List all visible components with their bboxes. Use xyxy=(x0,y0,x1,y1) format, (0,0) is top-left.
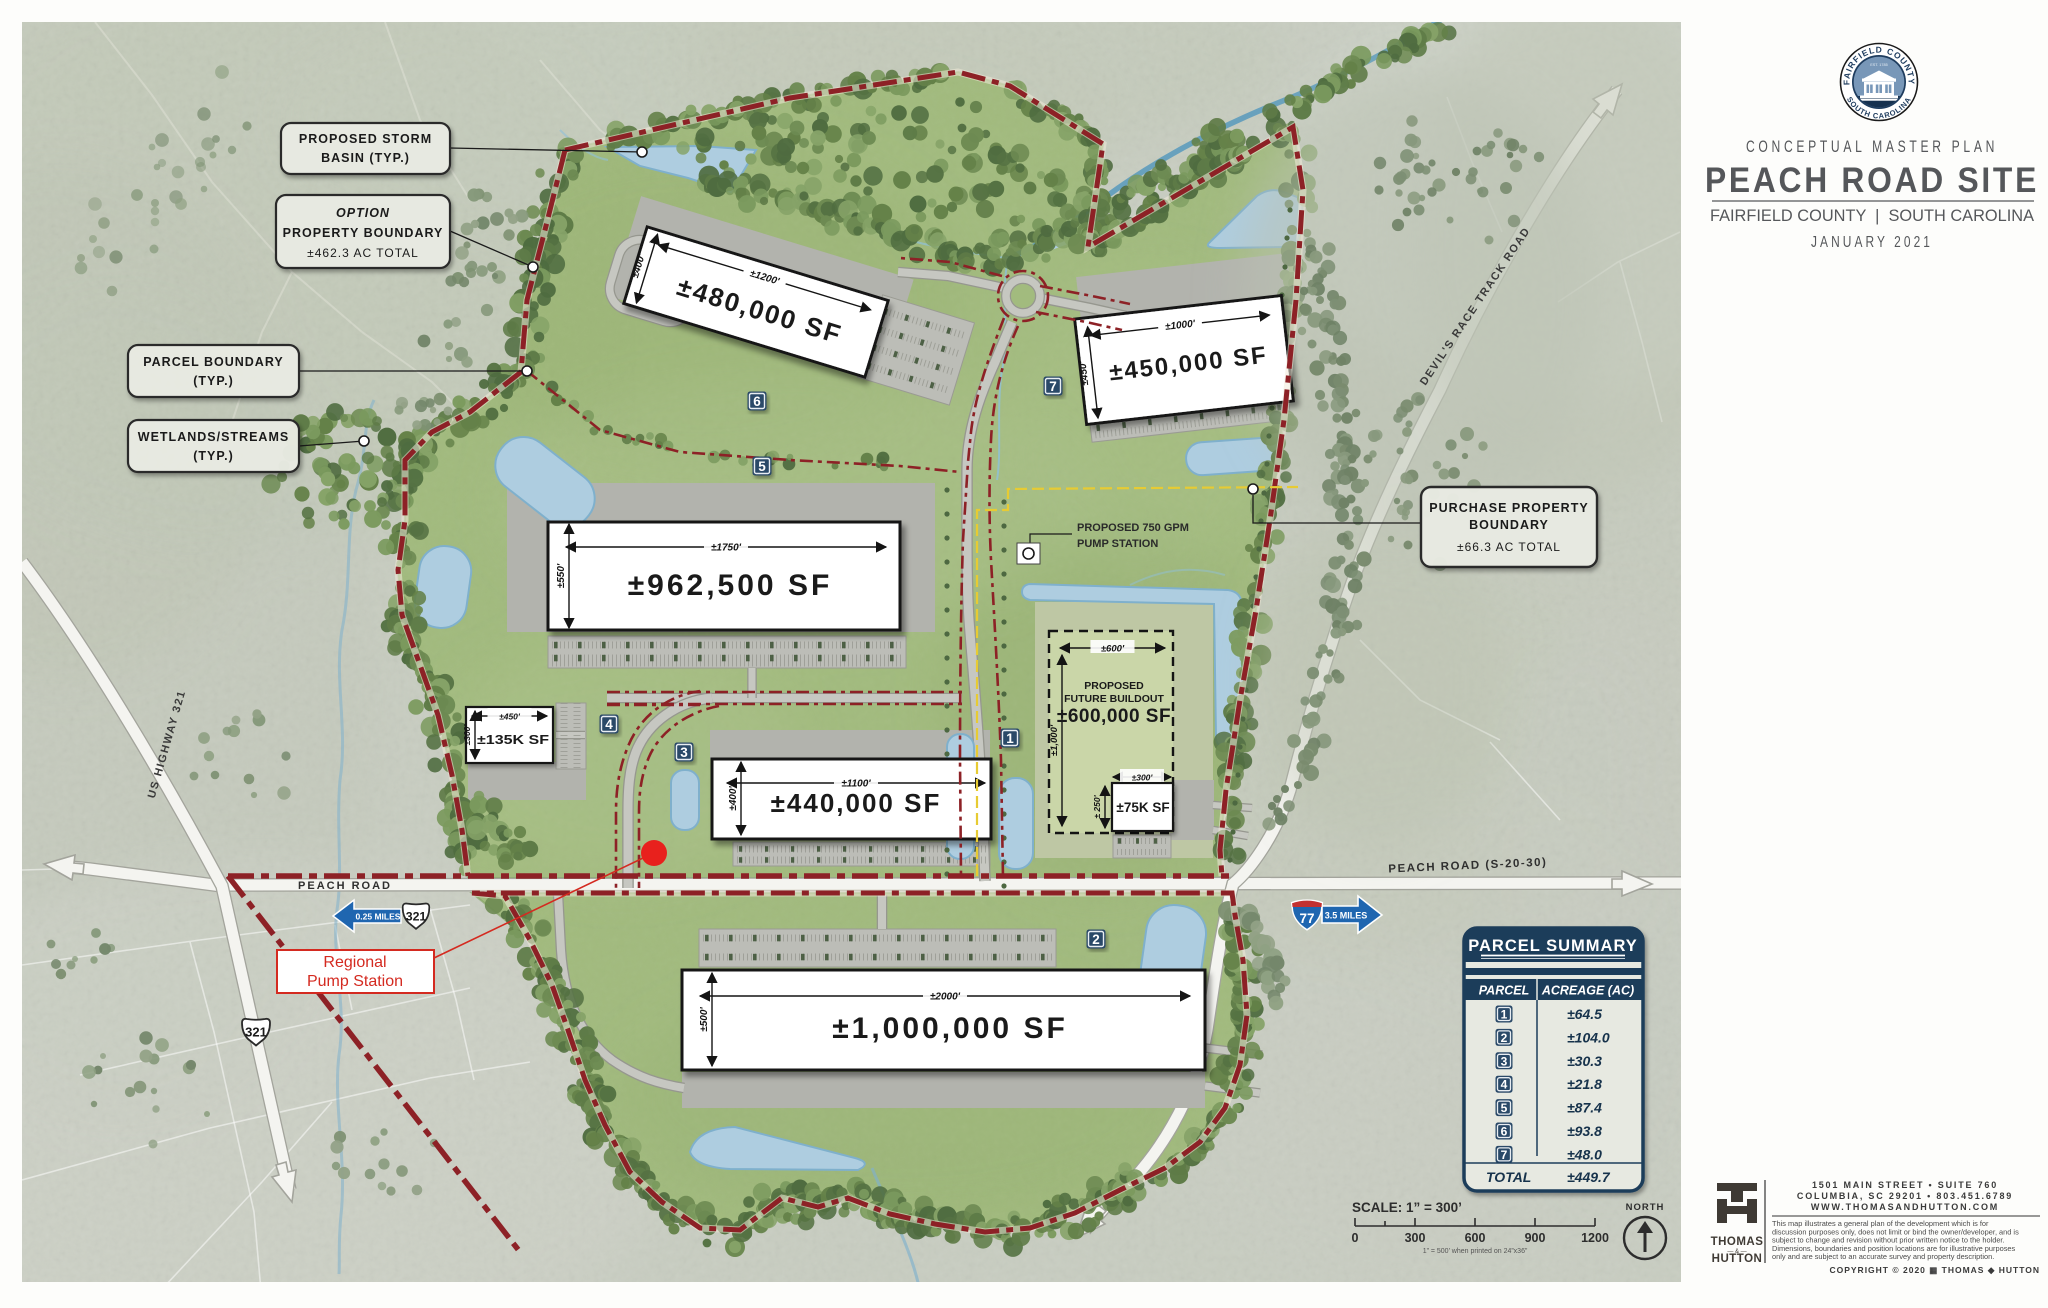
svg-text:PUMP STATION: PUMP STATION xyxy=(1077,538,1158,550)
svg-text:±400': ±400' xyxy=(728,786,739,811)
svg-text:7: 7 xyxy=(1501,1148,1508,1162)
svg-text:±2000': ±2000' xyxy=(930,992,961,1003)
svg-text:900: 900 xyxy=(1525,1231,1546,1245)
svg-text:±135K SF: ±135K SF xyxy=(477,732,549,747)
svg-text:±450': ±450' xyxy=(499,712,521,722)
svg-text:COLUMBIA, SC 29201 • 803.451.6: COLUMBIA, SC 29201 • 803.451.6789 xyxy=(1797,1191,2013,1201)
svg-text:BASIN (TYP.): BASIN (TYP.) xyxy=(321,151,410,165)
svg-text:1: 1 xyxy=(1501,1008,1508,1022)
svg-text:1” = 500’ when printed on 24”x: 1” = 500’ when printed on 24”x36” xyxy=(1423,1248,1528,1255)
svg-text:2: 2 xyxy=(1501,1031,1508,1045)
svg-text:FUTURE BUILDOUT: FUTURE BUILDOUT xyxy=(1064,693,1164,705)
svg-text:Regional: Regional xyxy=(323,954,386,971)
svg-text:6: 6 xyxy=(1501,1125,1508,1139)
svg-text:PEACH ROAD: PEACH ROAD xyxy=(298,880,392,892)
svg-text:PARCEL BOUNDARY: PARCEL BOUNDARY xyxy=(143,355,283,369)
svg-text:PARCEL: PARCEL xyxy=(1479,984,1529,998)
svg-text:4: 4 xyxy=(605,717,613,732)
svg-text:WETLANDS/STREAMS: WETLANDS/STREAMS xyxy=(138,430,289,444)
svg-text:PROPOSED: PROPOSED xyxy=(1084,680,1144,692)
svg-text:2: 2 xyxy=(1092,932,1100,947)
svg-text:±600,000 SF: ±600,000 SF xyxy=(1057,706,1171,727)
svg-text:7: 7 xyxy=(1049,379,1057,394)
svg-text:±48.0: ±48.0 xyxy=(1567,1146,1602,1162)
svg-text:WWW.THOMASANDHUTTON.COM: WWW.THOMASANDHUTTON.COM xyxy=(1811,1202,1999,1212)
svg-text:PEACH ROAD SITE: PEACH ROAD SITE xyxy=(1705,161,2039,200)
svg-text:3.5 MILES: 3.5 MILES xyxy=(1325,911,1368,921)
svg-text:only and are subject to an acc: only and are subject to an accurate surv… xyxy=(1772,1252,1994,1261)
svg-text:(TYP.): (TYP.) xyxy=(193,374,234,388)
svg-text:0.25 MILES: 0.25 MILES xyxy=(356,912,401,922)
svg-text:±1,000': ±1,000' xyxy=(1049,724,1060,756)
svg-text:BOUNDARY: BOUNDARY xyxy=(1469,518,1549,532)
svg-text:PURCHASE PROPERTY: PURCHASE PROPERTY xyxy=(1429,501,1588,515)
svg-text:77: 77 xyxy=(1299,911,1314,926)
svg-text:PROPOSED 750 GPM: PROPOSED 750 GPM xyxy=(1077,522,1189,534)
svg-text:±75K SF: ±75K SF xyxy=(1116,800,1169,815)
svg-text:± 250': ± 250' xyxy=(1092,794,1102,818)
svg-text:±440,000 SF: ±440,000 SF xyxy=(771,788,942,818)
svg-text:HUTTON: HUTTON xyxy=(1712,1253,1763,1265)
svg-text:SCALE: 1” = 300’: SCALE: 1” = 300’ xyxy=(1352,1200,1462,1215)
svg-text:FAIRFIELD COUNTY | SOUTH CAR: FAIRFIELD COUNTY | SOUTH CAROLINA xyxy=(1710,206,2035,225)
svg-text:CONCEPTUAL MASTER PLAN: CONCEPTUAL MASTER PLAN xyxy=(1746,138,1998,156)
svg-text:ACREAGE (AC): ACREAGE (AC) xyxy=(1541,984,1634,998)
svg-text:±1,000,000 SF: ±1,000,000 SF xyxy=(832,1012,1068,1045)
svg-text:3: 3 xyxy=(680,745,688,760)
svg-text:±962,500 SF: ±962,500 SF xyxy=(628,569,833,602)
svg-text:1: 1 xyxy=(1006,731,1014,746)
svg-text:±1750': ±1750' xyxy=(711,543,742,554)
svg-text:±300': ±300' xyxy=(462,724,472,746)
svg-text:0: 0 xyxy=(1352,1231,1359,1245)
svg-text:±600': ±600' xyxy=(1101,644,1125,655)
svg-text:COPYRIGHT © 2020 ▦ THOMAS ◆ HU: COPYRIGHT © 2020 ▦ THOMAS ◆ HUTTON xyxy=(1829,1265,2040,1275)
svg-text:OPTION: OPTION xyxy=(336,206,390,220)
svg-text:1200: 1200 xyxy=(1581,1231,1609,1245)
svg-text:JANUARY 2021: JANUARY 2021 xyxy=(1811,234,1933,251)
svg-text:±500': ±500' xyxy=(699,1007,710,1032)
svg-text:Pump Station: Pump Station xyxy=(307,973,403,990)
svg-text:±300': ±300' xyxy=(1132,773,1154,783)
svg-text:4: 4 xyxy=(1501,1078,1508,1092)
svg-text:THOMAS: THOMAS xyxy=(1711,1236,1764,1248)
svg-text:±64.5: ±64.5 xyxy=(1567,1006,1602,1022)
svg-text:PROPOSED STORM: PROPOSED STORM xyxy=(299,132,432,146)
svg-text:600: 600 xyxy=(1465,1231,1486,1245)
svg-text:321: 321 xyxy=(406,909,427,923)
svg-text:±66.3 AC TOTAL: ±66.3 AC TOTAL xyxy=(1457,540,1561,554)
svg-text:±21.8: ±21.8 xyxy=(1567,1076,1602,1092)
svg-text:EST. 1785: EST. 1785 xyxy=(1870,63,1888,67)
svg-text:5: 5 xyxy=(758,459,766,474)
svg-text:NORTH: NORTH xyxy=(1626,1202,1665,1213)
svg-text:±30.3: ±30.3 xyxy=(1567,1053,1602,1069)
svg-text:5: 5 xyxy=(1501,1101,1508,1115)
svg-text:±550': ±550' xyxy=(556,563,567,588)
svg-text:300: 300 xyxy=(1405,1231,1426,1245)
svg-text:±87.4: ±87.4 xyxy=(1567,1100,1602,1116)
svg-text:±93.8: ±93.8 xyxy=(1567,1123,1602,1139)
svg-text:PROPERTY BOUNDARY: PROPERTY BOUNDARY xyxy=(283,226,444,240)
svg-text:6: 6 xyxy=(753,394,761,409)
svg-text:±104.0: ±104.0 xyxy=(1567,1029,1610,1045)
svg-text:±462.3 AC TOTAL: ±462.3 AC TOTAL xyxy=(307,246,419,260)
svg-text:TOTAL: TOTAL xyxy=(1486,1169,1531,1185)
svg-text:±449.7: ±449.7 xyxy=(1567,1169,1611,1185)
svg-text:321: 321 xyxy=(245,1025,267,1040)
svg-text:3: 3 xyxy=(1501,1054,1508,1068)
svg-text:1501 MAIN STREET • SUITE 760: 1501 MAIN STREET • SUITE 760 xyxy=(1812,1180,1998,1190)
svg-text:(TYP.): (TYP.) xyxy=(193,449,234,463)
svg-text:PARCEL SUMMARY: PARCEL SUMMARY xyxy=(1468,937,1638,955)
